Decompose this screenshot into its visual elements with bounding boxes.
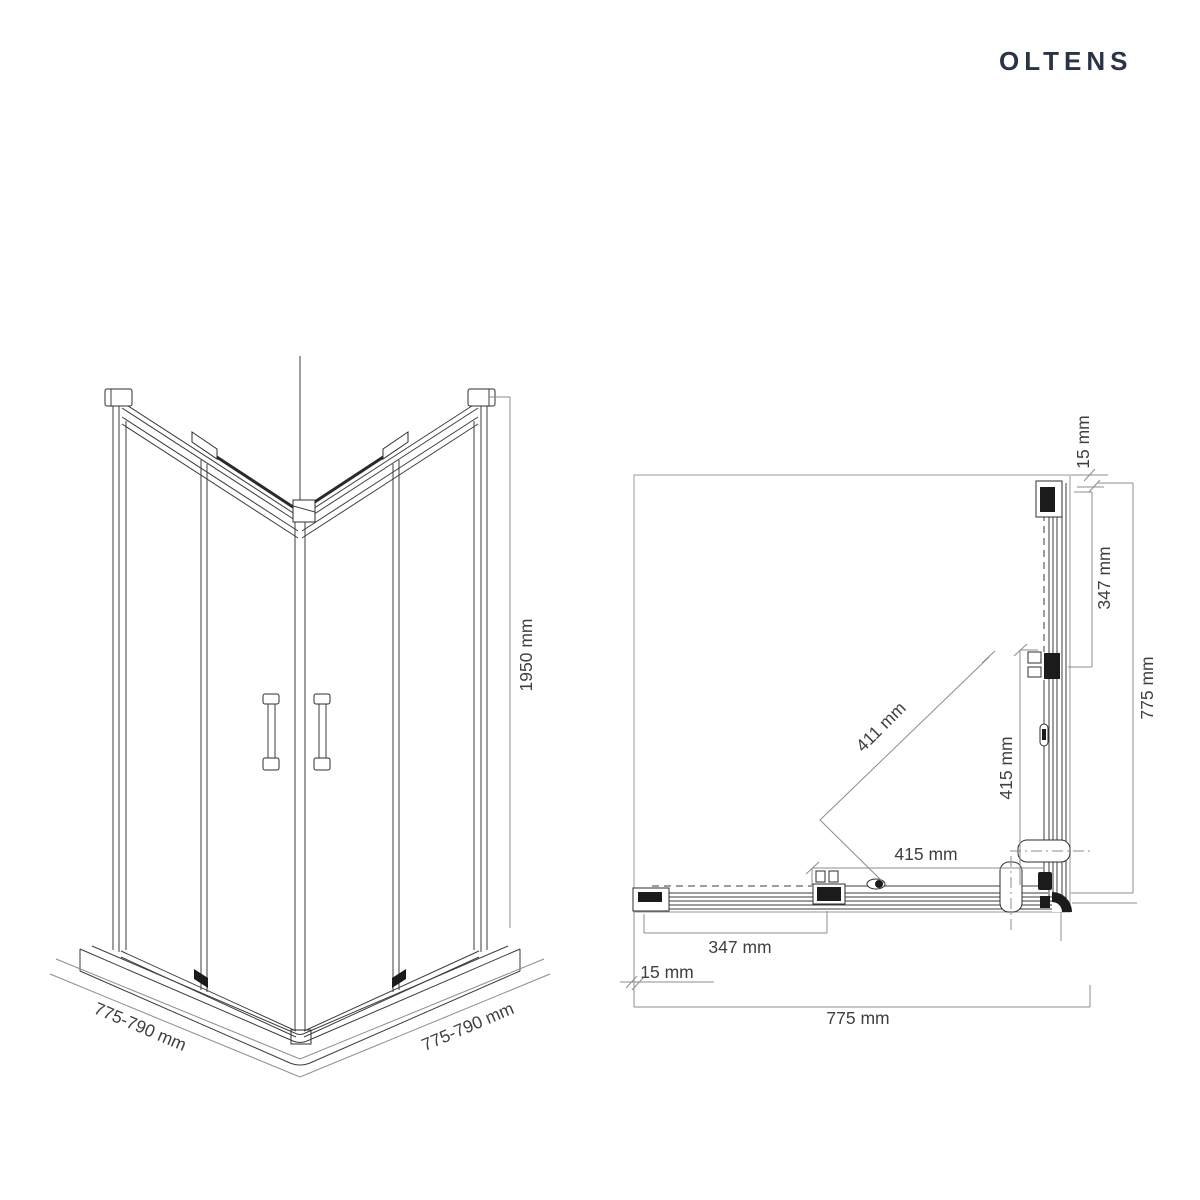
plan-view: 15 mm 347 mm 775 mm 411 mm 415 mm 415 mm… (620, 415, 1157, 1028)
front-view: 1950 mm 775-790 mm 775-790 mm (50, 356, 550, 1077)
base-width-right-label: 775-790 mm (419, 998, 517, 1055)
height-dimension-line (489, 397, 510, 928)
shower-tray (80, 946, 520, 1065)
tick-mark (982, 651, 995, 663)
technical-drawing: 1950 mm 775-790 mm 775-790 mm (0, 0, 1200, 1200)
bottom-fixed-label: 347 mm (708, 937, 771, 957)
corner-hardware (1038, 872, 1072, 912)
door-edge-right (393, 460, 399, 992)
right-fixed-label: 347 mm (1094, 546, 1114, 609)
dim-top-gap (1071, 469, 1108, 492)
dim-bottom-fixed (644, 911, 827, 933)
right-overall-label: 775 mm (1137, 656, 1157, 719)
dim-right-fixed (1068, 492, 1092, 667)
plan-handle-right-door (1010, 840, 1092, 862)
bottom-gap-label: 15 mm (640, 962, 693, 982)
corner-extension-lines (1061, 903, 1137, 941)
dim-bottom-overall (634, 985, 1090, 1007)
wall-post-right (468, 389, 495, 952)
top-rail-right (302, 402, 478, 538)
top-gap-label: 15 mm (1073, 415, 1093, 468)
base-width-left-label: 775-790 mm (91, 998, 189, 1055)
bottom-track (633, 871, 1062, 911)
dim-right-overall (1071, 483, 1133, 893)
wall-post-left (105, 389, 132, 952)
door-vertical-label: 415 mm (996, 736, 1016, 799)
enclosure-outline (634, 475, 1070, 912)
top-rail-left (122, 402, 298, 538)
door-diagonal-label: 411 mm (852, 698, 910, 756)
bottom-overall-label: 775 mm (826, 1008, 889, 1028)
height-label: 1950 mm (516, 619, 536, 692)
door-horizontal-label: 415 mm (894, 844, 957, 864)
corner-post (291, 500, 315, 1044)
plan-handle-bottom-door (1000, 856, 1022, 932)
dim-bottom-gap (620, 912, 714, 1007)
door-handle-left (263, 694, 279, 770)
door-edge-left (201, 460, 207, 992)
door-handle-right (314, 694, 330, 770)
product-dimension-sheet: OLTENS (0, 0, 1200, 1200)
